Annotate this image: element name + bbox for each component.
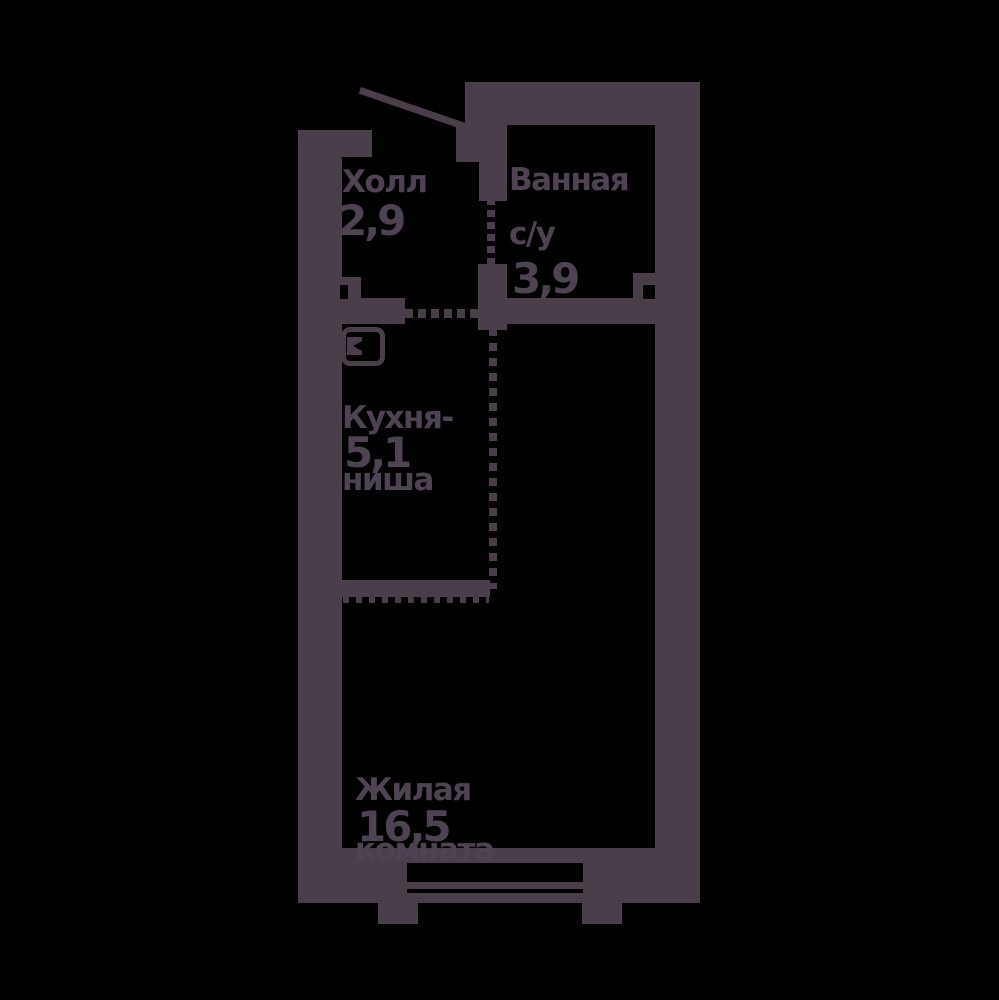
window-pier-left: [378, 903, 418, 924]
hall-label: Холл: [342, 168, 427, 197]
wall-hall-top: [298, 130, 372, 157]
bathroom-jamb-upper: [479, 123, 507, 201]
wall-left-outer: [298, 130, 342, 903]
wall-kitchen-top: [300, 298, 405, 324]
duct-symbol-bathroom: [633, 273, 657, 299]
living-room-area: 16,5: [357, 806, 449, 848]
window-pier-right: [582, 903, 622, 924]
floor-plan: Холл 2,9 Ванная с/у 3,9 Кухня- ниша 5,1 …: [0, 0, 999, 1000]
stove-icon-inner-shape: [347, 337, 362, 355]
duct-symbol-bathroom-notch: [643, 285, 655, 299]
niche-boundary-dots: [343, 596, 489, 603]
duct-symbol-hall-notch: [340, 285, 348, 299]
bathroom-label-line1: Ванная: [509, 162, 628, 198]
bathroom-label-line2: с/у: [509, 216, 554, 252]
kitchen-living-divider-dashes: [489, 328, 497, 589]
stove-icon: [341, 327, 385, 366]
kitchen-area: 5,1: [344, 432, 409, 474]
bathroom-label: Ванная с/у: [509, 140, 628, 248]
hall-kitchen-opening-dashes: [405, 309, 479, 318]
bathroom-area: 3,9: [512, 258, 577, 300]
wall-right-outer: [655, 82, 700, 903]
entry-door-jamb: [456, 124, 481, 162]
hall-area: 2,9: [338, 200, 403, 242]
wall-kitchen-bottom: [342, 580, 490, 597]
window-glass-line: [407, 889, 583, 893]
entry-door-swing-line: [359, 87, 469, 131]
duct-symbol-hall: [340, 277, 361, 299]
bathroom-door-dotted-line: [487, 198, 495, 266]
